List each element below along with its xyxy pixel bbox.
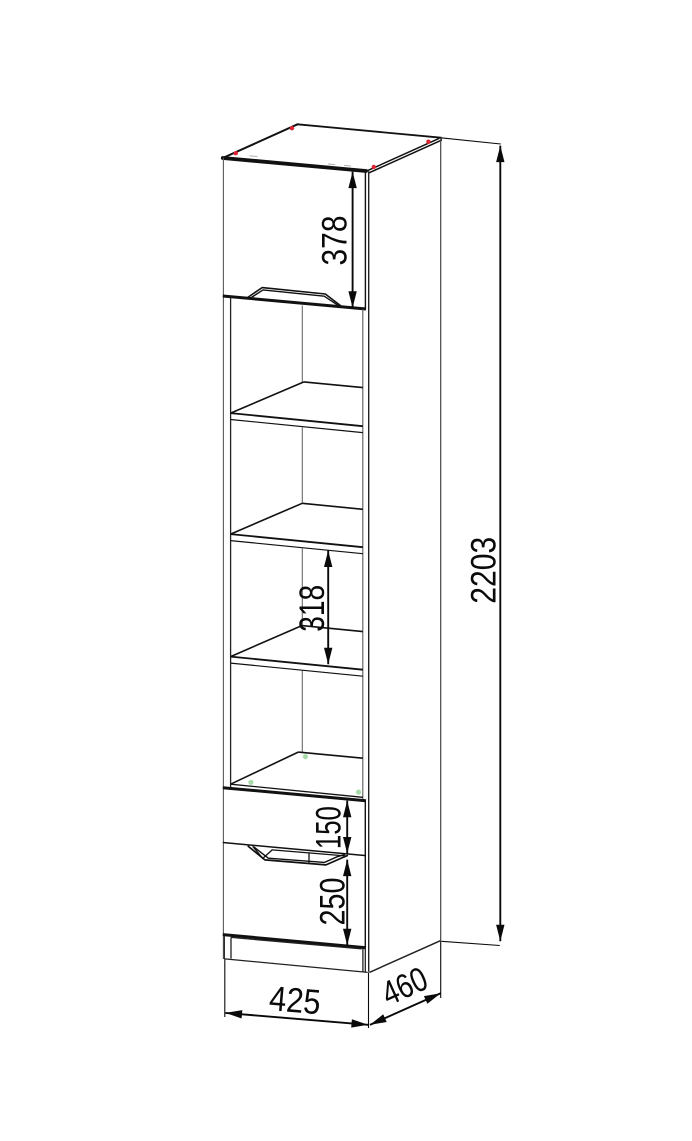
svg-text:250: 250 — [313, 878, 352, 926]
svg-text:318: 318 — [293, 585, 332, 632]
svg-text:378: 378 — [316, 216, 355, 266]
svg-text:150: 150 — [310, 806, 349, 849]
svg-text:2203: 2203 — [465, 537, 504, 604]
svg-text:425: 425 — [268, 979, 323, 1022]
